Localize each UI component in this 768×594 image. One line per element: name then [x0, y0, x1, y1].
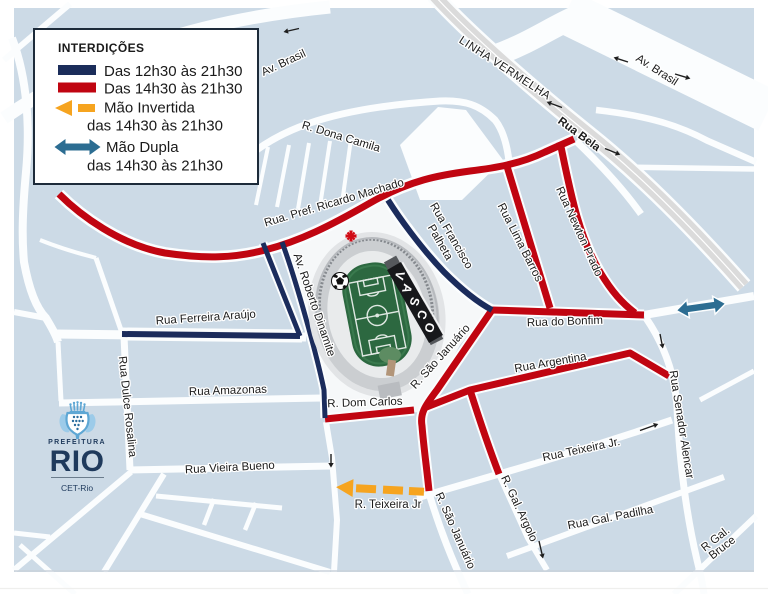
svg-text:CET-Rio: CET-Rio — [61, 483, 93, 493]
svg-text:Das 12h30 às 21h30: Das 12h30 às 21h30 — [104, 63, 242, 80]
svg-text:R. Teixeira Jr: R. Teixeira Jr — [355, 499, 422, 511]
svg-text:Mão Dupla: Mão Dupla — [106, 139, 179, 156]
svg-text:das 14h30 às 21h30: das 14h30 às 21h30 — [87, 158, 223, 175]
svg-text:Mão Invertida: Mão Invertida — [104, 100, 196, 117]
svg-text:Das 14h30 às 21h30: Das 14h30 às 21h30 — [104, 81, 242, 98]
svg-text:INTERDIÇÕES: INTERDIÇÕES — [58, 40, 144, 55]
svg-text:RIO: RIO — [50, 445, 105, 478]
svg-text:das 14h30 às 21h30: das 14h30 às 21h30 — [87, 118, 223, 135]
